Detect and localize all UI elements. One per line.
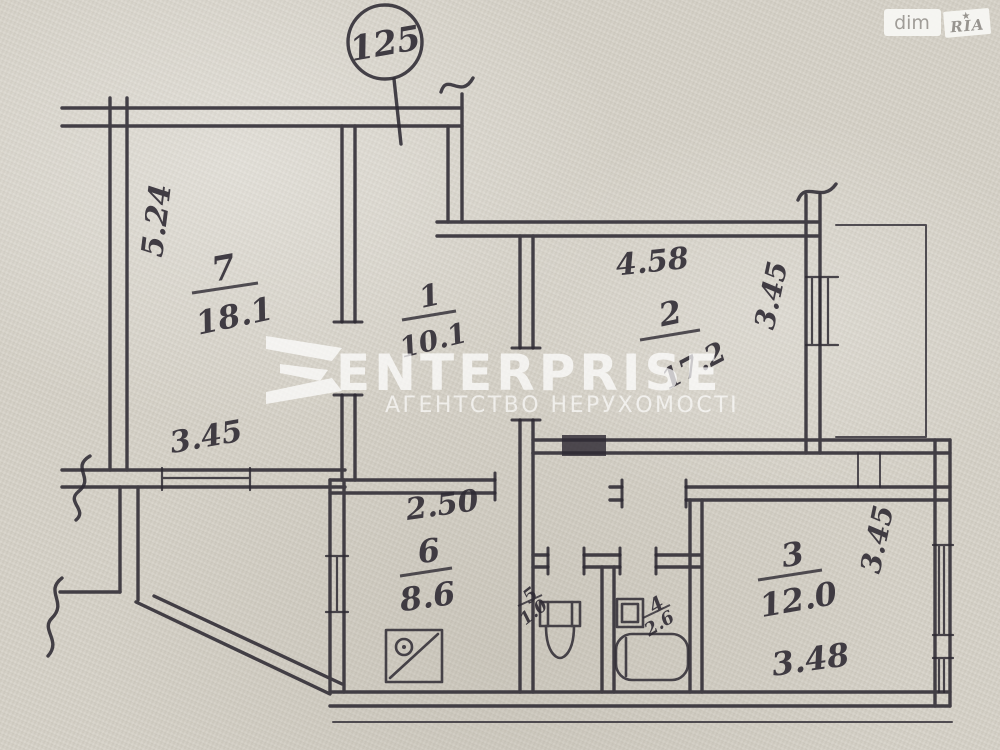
apartment-number-text: 125 (347, 18, 424, 70)
window-room2-balcony (806, 277, 838, 345)
enterprise-logo-icon (266, 336, 342, 404)
toilet-tank-lines (548, 602, 572, 626)
wall-right-outer (935, 440, 950, 706)
site-badges: dim ★ RIA (884, 8, 991, 38)
room2-number: 2 (654, 293, 685, 335)
wall-entry-diagonal (136, 596, 342, 694)
wall-room7-room1-divider (342, 126, 355, 480)
wall-pier-block (562, 435, 606, 456)
wall-bottom-outer (330, 692, 950, 706)
jamb-room3-door (622, 480, 686, 507)
watermark-subtitle: АГЕНТСТВО НЕРУХОМОСТІ (385, 393, 739, 418)
wall-bath-room3-divider (690, 500, 702, 692)
wall-wc-bath-divider (602, 567, 614, 692)
dim-entry-window: 3.45 (167, 414, 245, 461)
toilet-bowl (546, 626, 574, 658)
ria-badge: ★ RIA (943, 8, 991, 38)
stove-burner-dot (402, 645, 406, 649)
room7-area: 18.1 (192, 289, 276, 342)
balcony-outline (836, 225, 926, 437)
break-squiggle-left-lower (48, 578, 62, 656)
scanned-floor-plan-page: 125 5.24 7 18.1 1 10.1 4.58 2 17.2 3.45 … (0, 0, 1000, 750)
room3-area: 12.0 (757, 574, 840, 625)
break-squiggle-top (441, 78, 473, 92)
wall-top-outer (62, 108, 462, 126)
apartment-number-callout: 125 (347, 5, 424, 144)
stove-diagonal (390, 634, 438, 678)
dim-room7-left: 5.24 (135, 182, 179, 259)
wall-kitchen-right (520, 453, 533, 692)
ria-badge-label: RIA (949, 15, 986, 36)
sink-icon (617, 599, 643, 627)
wall-room2-top (437, 222, 818, 236)
room6-number: 6 (415, 531, 442, 572)
break-squiggle-room2-top (798, 184, 836, 200)
agency-watermark: ENTERPRISE АГЕНТСТВО НЕРУХОМОСТІ (266, 336, 739, 418)
room3-number: 3 (778, 534, 807, 575)
dim-room2-right: 3.45 (748, 258, 794, 332)
wall-entry-left-vertical (120, 487, 138, 600)
wall-wc-bath-top (533, 555, 700, 567)
dim-room3-bottom: 3.48 (769, 635, 851, 683)
logo-bar-middle (280, 364, 328, 381)
room7-number: 7 (209, 247, 240, 291)
floor-plan-drawing: 125 5.24 7 18.1 1 10.1 4.58 2 17.2 3.45 … (0, 0, 1000, 750)
stove-icon (386, 630, 442, 682)
wall-left-outer (110, 98, 127, 470)
logo-bar-top (266, 336, 342, 361)
dim-badge-label: dim (894, 12, 930, 34)
room4-bath-area: 2.6 (640, 606, 679, 641)
shaft-connector-lines (858, 453, 880, 487)
dim-room2-top: 4.58 (614, 241, 690, 283)
room6-area: 8.6 (396, 574, 457, 620)
wall-room3-top (610, 487, 950, 500)
wall-top-right-vertical (448, 94, 462, 222)
dim-kitchen-top: 2.50 (403, 483, 481, 528)
sink-inner (622, 604, 638, 622)
room1-number: 1 (416, 277, 444, 316)
dim-badge: dim (884, 9, 941, 36)
apartment-number-leader (394, 79, 401, 144)
labels: 5.24 7 18.1 1 10.1 4.58 2 17.2 3.45 3.45… (135, 182, 900, 684)
dim-room3-right: 3.45 (854, 502, 900, 576)
logo-bar-bottom (266, 378, 342, 404)
